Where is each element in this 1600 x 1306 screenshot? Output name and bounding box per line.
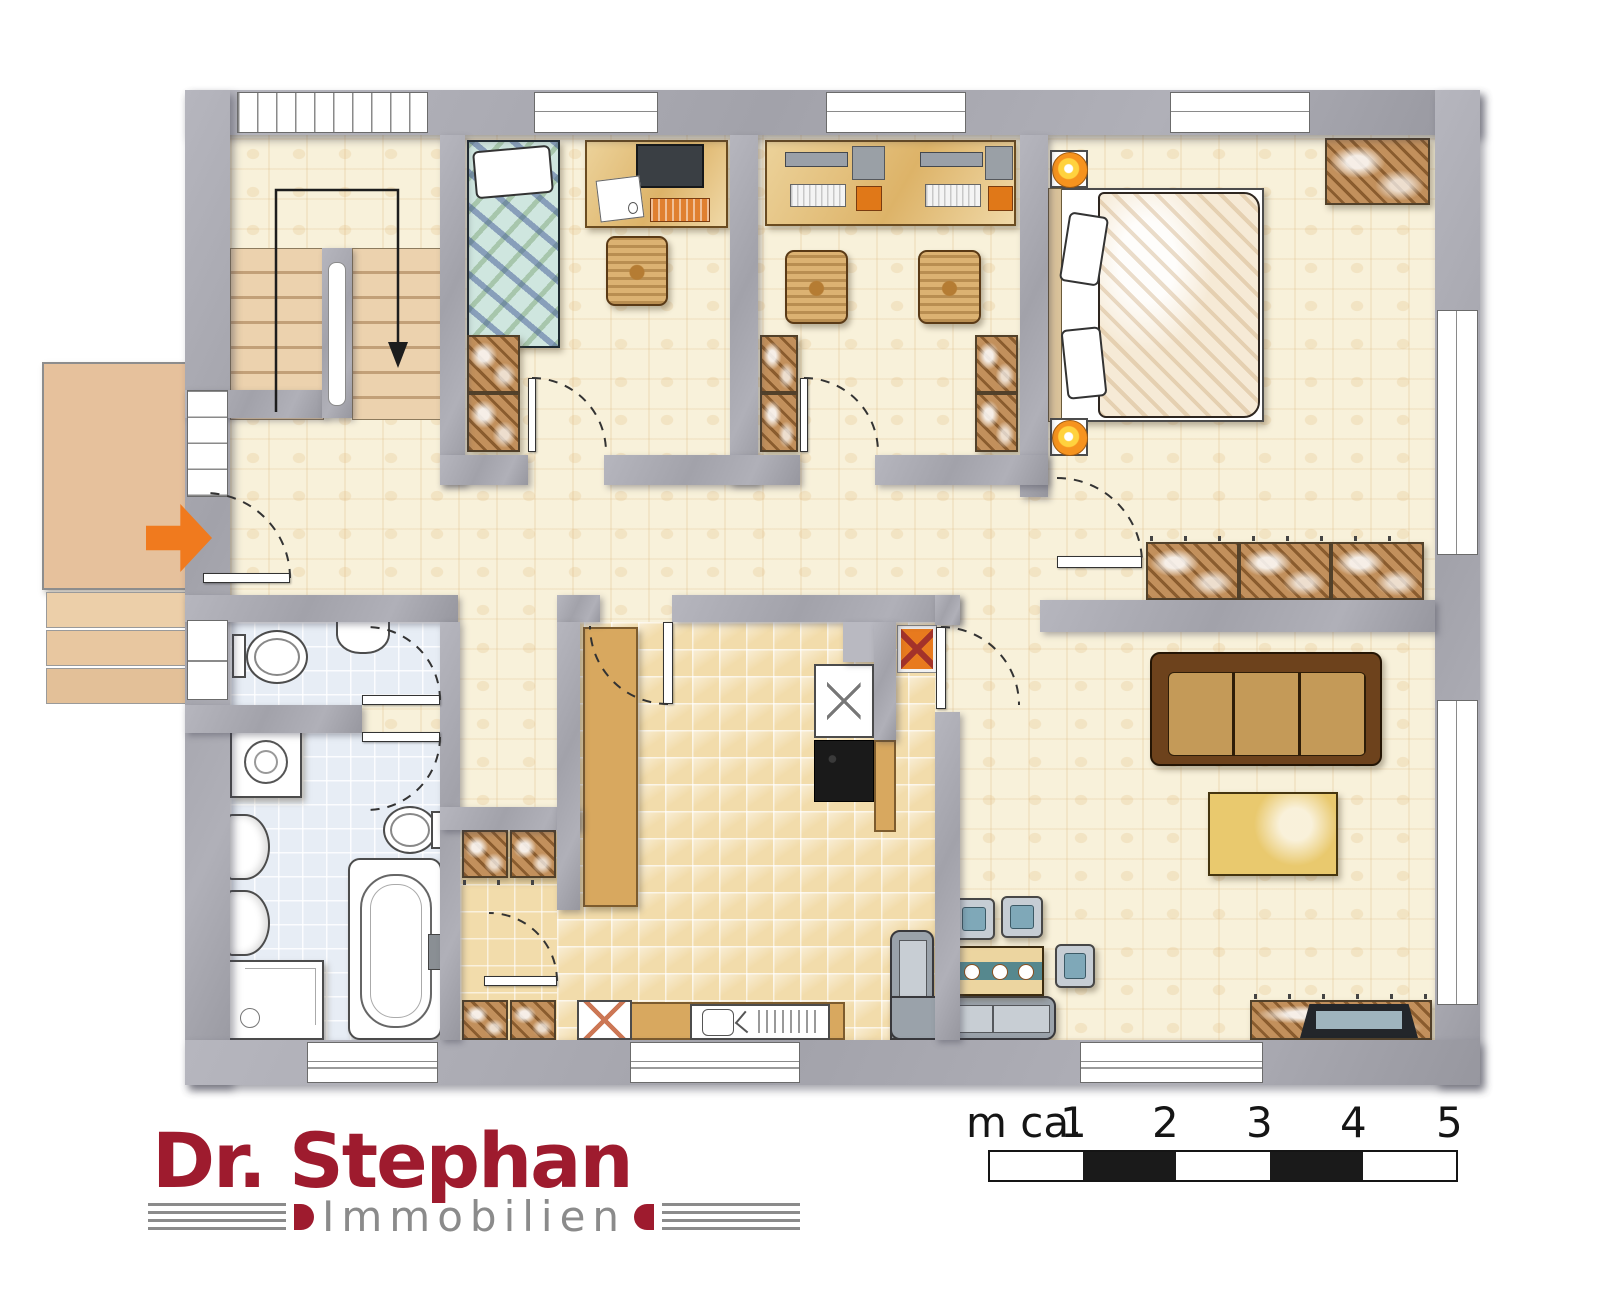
chair-pad [962, 907, 986, 931]
kitchen-sink-unit [690, 1004, 830, 1040]
window-bath-bottom [307, 1042, 438, 1083]
window-mullion [308, 1067, 437, 1069]
double-bed-headboard [1048, 188, 1062, 422]
kid-desk-paper [596, 175, 645, 222]
wc-toilet-tank [232, 634, 246, 678]
scalebar-segment [1083, 1152, 1176, 1180]
office-wardrobe-right-lower [975, 393, 1018, 452]
bed-pillow-lower [1060, 326, 1107, 400]
sofa [1150, 652, 1382, 766]
kid-desk-keyboard [650, 198, 710, 222]
bedroom-wardrobe-2 [1239, 542, 1331, 600]
window-mullion [1456, 701, 1458, 1004]
wall-office-bedroom [1020, 135, 1048, 497]
office-chair-2 [918, 250, 981, 324]
door-bathroom [362, 732, 440, 742]
office-wardrobe-left-lower [760, 393, 798, 452]
window-mullion [188, 660, 227, 662]
wc-toilet-bowl [246, 630, 308, 684]
window-mullion [1081, 1067, 1262, 1069]
scalebar-tick-3: 3 [1246, 1098, 1273, 1147]
office-keyboard-1 [790, 184, 846, 207]
window-wc-left [187, 620, 228, 700]
entrance-step-3 [46, 668, 188, 704]
wall-kitchen-living [935, 712, 960, 1040]
window-mullion [535, 111, 657, 113]
window-living-bottom [1080, 1042, 1263, 1083]
kitchen-counter-left [583, 627, 638, 907]
logo-cap-left [294, 1204, 314, 1230]
bathtub-basin [360, 874, 432, 1028]
pantry-cabinet-bottom-1 [462, 1000, 508, 1040]
scalebar-segment [1176, 1152, 1269, 1180]
wall-stair-kidroom [440, 135, 465, 485]
door-kitchen-hall [663, 622, 673, 704]
office-chair-1 [785, 250, 848, 324]
logo-lines-right [662, 1203, 800, 1231]
wall-rooms-south-b [604, 455, 800, 485]
wall-kitchen-shaft [843, 622, 876, 662]
window-stairwell-top [237, 92, 428, 133]
window-mullion [827, 111, 965, 113]
kitchen-appliance-x [577, 1000, 632, 1040]
office-wardrobe-left-upper [760, 335, 798, 393]
wall-kitchen-living-top-stub [935, 595, 960, 625]
kid-desk-chair [606, 236, 668, 306]
scalebar-tick-4: 4 [1340, 1098, 1367, 1147]
double-bed-duvet [1098, 192, 1260, 418]
office-monitor-2 [920, 152, 983, 167]
wall-wc-north [185, 595, 458, 622]
kitchen-stove [814, 740, 874, 802]
tv [1300, 1004, 1418, 1038]
wardrobe-ticks [1150, 536, 1420, 541]
shower-drain [240, 1008, 260, 1028]
dining-plate [1018, 964, 1034, 980]
kitchen-counter-right [874, 740, 896, 832]
door-kidroom [528, 378, 536, 452]
kitchen-fridge [814, 664, 874, 738]
bedroom-wardrobe-3 [1331, 542, 1424, 600]
wall-kitchen-north-a [557, 595, 600, 622]
entrance-step-2 [46, 630, 188, 666]
wall-kidroom-office [730, 135, 758, 485]
pantry-ticks [463, 880, 555, 885]
window-kidroom-top [534, 92, 658, 133]
kitchen-sink-bowl [702, 1009, 734, 1036]
dining-plate [992, 964, 1008, 980]
wall-bedroom-south [1040, 600, 1435, 632]
floorplan-canvas: Dr. Stephan Immobilien m ca. 1 2 3 4 5 [0, 0, 1600, 1306]
office-wardrobe-right-upper [975, 335, 1018, 393]
scalebar-segment [1270, 1152, 1363, 1180]
wall-kitchen-stub [874, 622, 896, 740]
kid-desk-monitor [636, 144, 704, 188]
window-living-right [1437, 700, 1478, 1005]
window-kitchen-bottom [630, 1042, 800, 1083]
scalebar-tick-2: 2 [1152, 1098, 1179, 1147]
kid-wardrobe-upper [467, 335, 520, 393]
window-mullion [1081, 1061, 1262, 1063]
nightstand-lamp-lower [1052, 420, 1088, 456]
single-bed-pillow [472, 145, 554, 200]
tv-screen [1316, 1011, 1402, 1029]
pantry-cabinet-top-1 [462, 830, 508, 878]
wall-kitchen-north-b [672, 595, 960, 622]
office-monitor-1 [785, 152, 848, 167]
office-keyboard-2 [925, 184, 981, 207]
dining-plate [964, 964, 980, 980]
bedroom-dresser [1325, 138, 1430, 205]
dining-table [952, 946, 1044, 996]
window-entry-sidelight [187, 390, 228, 497]
corner-bench-horizontal [890, 996, 1056, 1040]
brand-subtitle-row: Immobilien [148, 1192, 800, 1241]
scalebar-segment [990, 1152, 1083, 1180]
scalebar-segment [1363, 1152, 1456, 1180]
entrance-platform [42, 362, 188, 590]
window-mullion [631, 1061, 799, 1063]
logo-lines-left [148, 1203, 286, 1231]
stair-railing-slot [328, 262, 346, 406]
kitchen-heater-unit [898, 626, 936, 672]
brand-subtitle: Immobilien [322, 1192, 626, 1241]
bedroom-wardrobe-1 [1146, 542, 1239, 600]
wall-kitchen-pantry [557, 622, 580, 910]
window-bedroom-top [1170, 92, 1310, 133]
scalebar-tick-1: 1 [1060, 1098, 1087, 1147]
chair-pad [1010, 905, 1034, 929]
dining-chair-2 [1001, 896, 1043, 938]
office-tablet-2 [985, 146, 1013, 180]
sofa-seats [1168, 672, 1366, 756]
office-tablet-1 [852, 146, 885, 180]
kid-wardrobe-lower [467, 393, 520, 452]
window-mullion [1171, 111, 1309, 113]
office-computer-2 [988, 186, 1013, 211]
exterior-wall-left [185, 90, 230, 1085]
tv-board-ticks [1254, 994, 1428, 999]
window-office-top [826, 92, 966, 133]
kitchen-sink-drainer [758, 1010, 820, 1033]
coffee-table [1208, 792, 1338, 876]
chair-pad [1064, 953, 1086, 979]
window-mullion [1456, 311, 1458, 554]
washing-machine-drum [244, 740, 288, 784]
window-bedroom-right [1437, 310, 1478, 555]
window-mullion [631, 1067, 799, 1069]
wall-rooms-south-a [440, 455, 528, 485]
door-entrance [203, 573, 290, 583]
window-mullion [308, 1061, 437, 1063]
wall-rooms-south-c [875, 455, 1048, 485]
door-bedroom [1057, 556, 1142, 568]
office-computer-1 [856, 186, 882, 211]
kitchen-sink-faucet [735, 1011, 758, 1034]
shower [228, 960, 324, 1040]
wall-wc-bath-divider [185, 705, 362, 733]
bathtub [348, 858, 442, 1040]
door-office [800, 378, 808, 452]
bath-toilet-bowl [383, 806, 437, 854]
kid-desk-mouse [628, 202, 638, 214]
pantry-cabinet-top-2 [510, 830, 556, 878]
entrance-step-1 [46, 592, 188, 628]
stair-flight-right [352, 248, 442, 420]
door-pantry [484, 976, 557, 986]
door-wc [362, 695, 440, 705]
scalebar [988, 1150, 1458, 1182]
wall-corridor-right [440, 622, 460, 1040]
scalebar-tick-5: 5 [1436, 1098, 1463, 1147]
nightstand-lamp-upper [1052, 152, 1088, 188]
door-kitchen-living [936, 627, 946, 709]
pantry-cabinet-bottom-2 [510, 1000, 556, 1040]
logo-cap-right [634, 1204, 654, 1230]
dining-chair-3 [1055, 944, 1095, 988]
